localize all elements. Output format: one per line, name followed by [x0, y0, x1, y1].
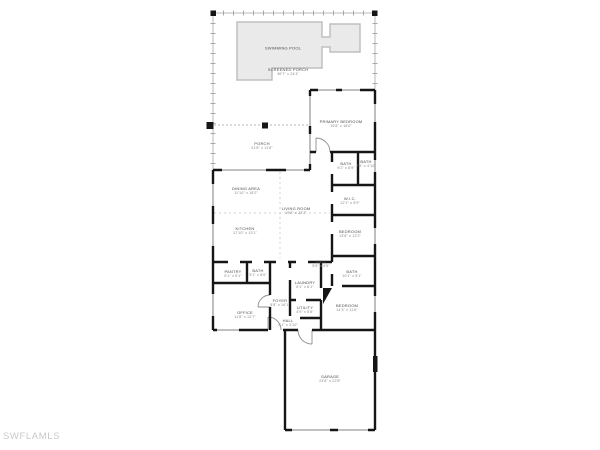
dashed-lines — [214, 172, 330, 258]
mls-watermark: SWFLAMLS — [3, 431, 60, 442]
floorplan-image: SWIMMING POOL SCREENED PORCH 36'7" x 24'… — [0, 0, 600, 450]
floorplan-drawing — [0, 0, 600, 450]
walls — [213, 90, 378, 430]
windows — [213, 90, 375, 430]
angled-wall-wedge — [323, 288, 332, 304]
swimming-pool-shape — [237, 22, 360, 80]
wall-pilaster — [373, 356, 378, 372]
